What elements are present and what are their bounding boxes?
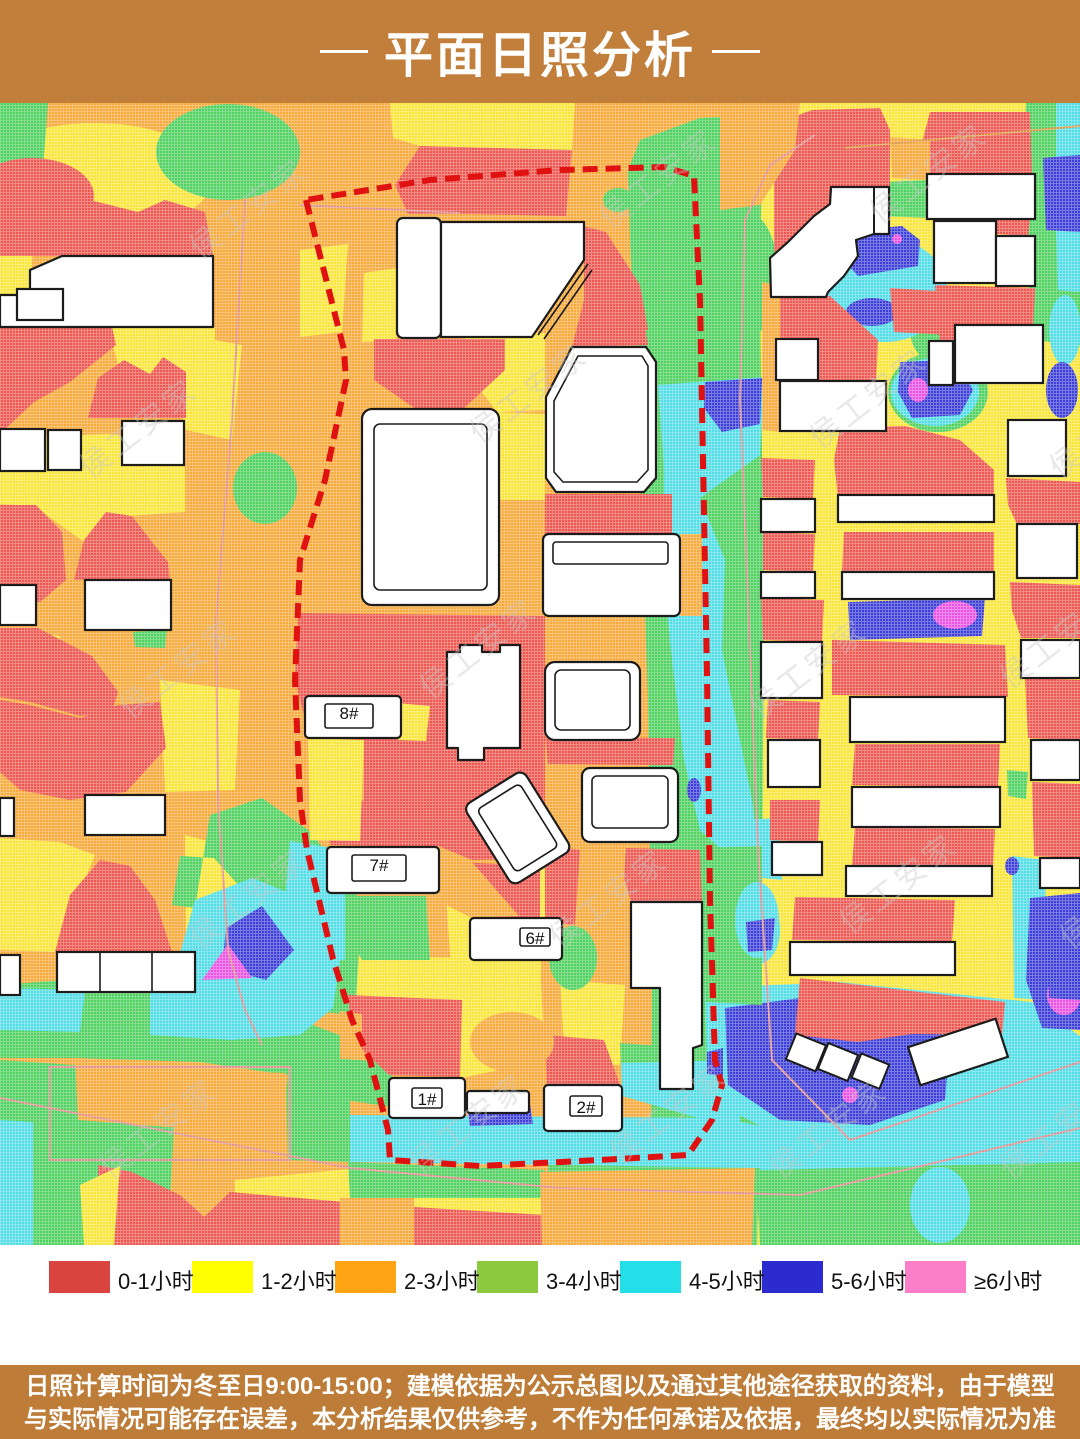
svg-text:2#: 2# [577,1098,596,1117]
svg-text:6#: 6# [526,929,545,948]
svg-text:1#: 1# [418,1090,437,1109]
svg-text:8#: 8# [340,704,359,723]
svg-text:7#: 7# [370,856,389,875]
